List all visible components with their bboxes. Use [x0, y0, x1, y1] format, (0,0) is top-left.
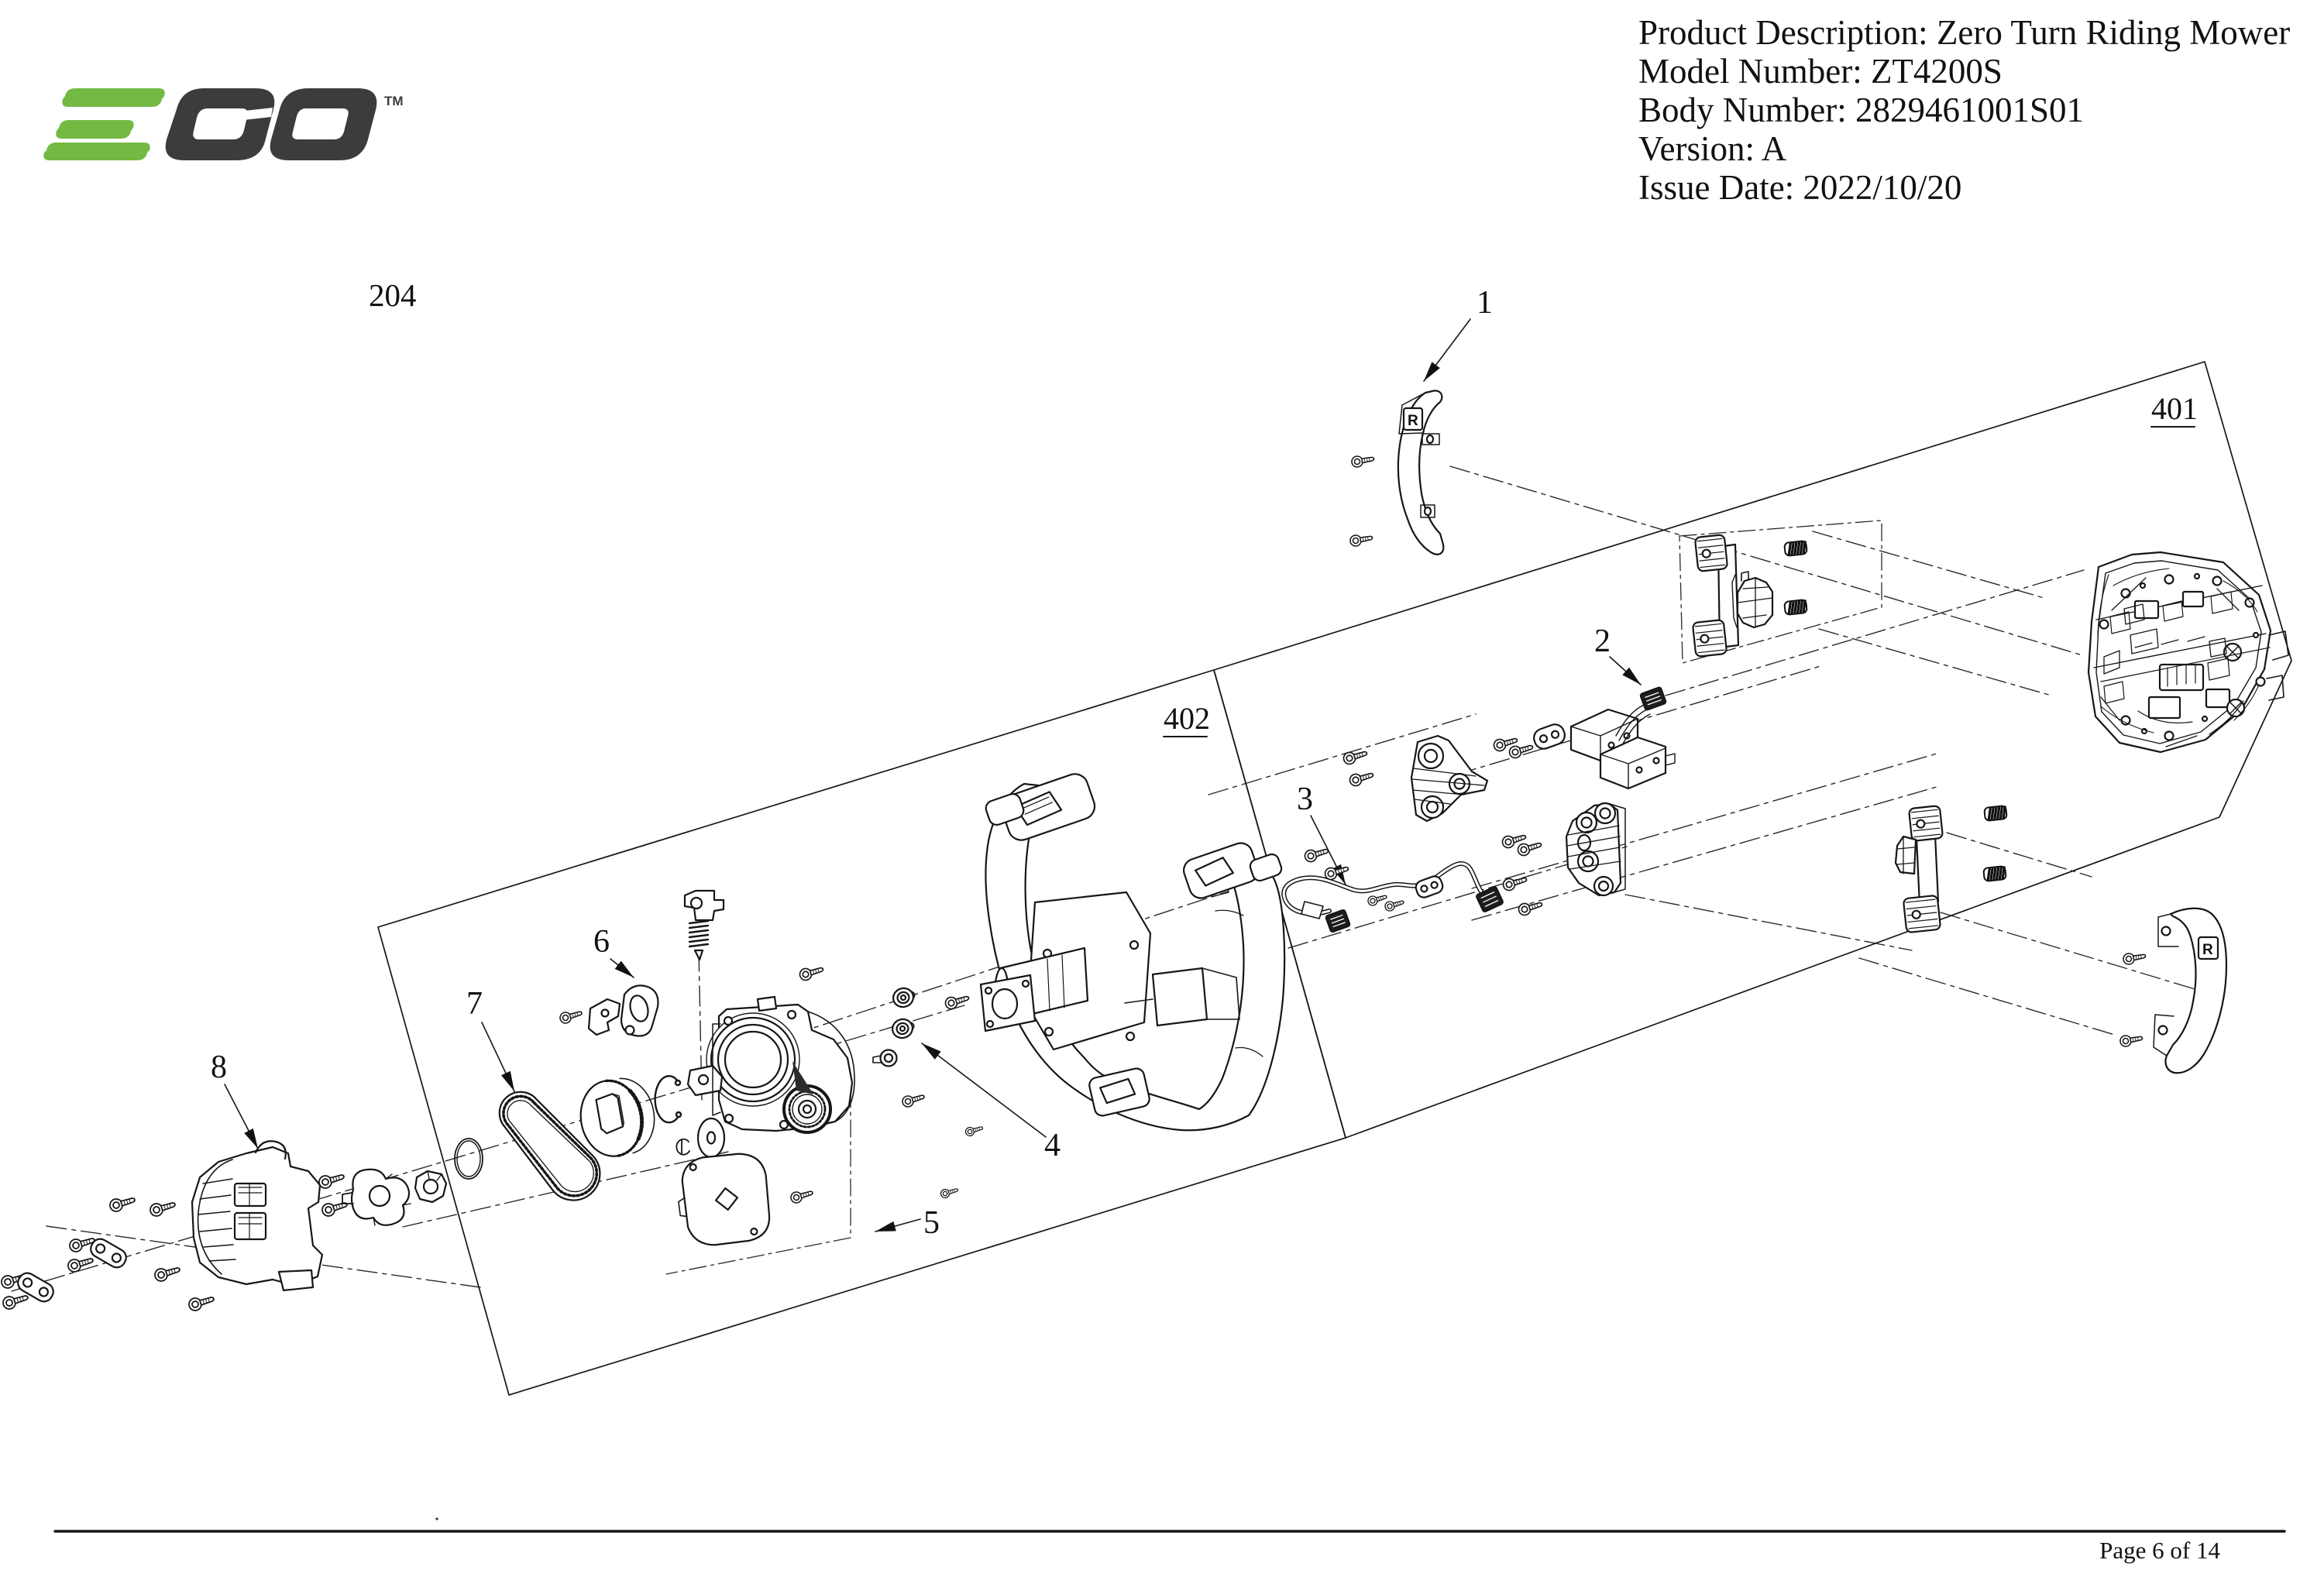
svg-text:R: R [1408, 413, 1418, 429]
svg-text:Product Description: Zero Turn: Product Description: Zero Turn Riding Mo… [1638, 13, 2290, 52]
svg-text:Model Number: ZT4200S: Model Number: ZT4200S [1638, 52, 2003, 91]
svg-text:R: R [2202, 942, 2213, 958]
svg-text:Body Number: 2829461001S01: Body Number: 2829461001S01 [1638, 91, 2084, 129]
svg-text:8: 8 [211, 1050, 227, 1085]
svg-text:7: 7 [466, 986, 483, 1022]
svg-text:5: 5 [923, 1205, 940, 1241]
svg-text:6: 6 [593, 924, 610, 960]
svg-text:2: 2 [1594, 624, 1611, 659]
svg-text:4: 4 [1044, 1128, 1061, 1163]
svg-text:402: 402 [1164, 701, 1210, 736]
svg-text:204: 204 [369, 277, 417, 313]
svg-text:1: 1 [1477, 285, 1493, 321]
svg-text:Version: A: Version: A [1638, 129, 1787, 168]
svg-text:Issue Date: 2022/10/20: Issue Date: 2022/10/20 [1638, 168, 1961, 207]
svg-text:401: 401 [2151, 391, 2198, 426]
svg-text:3: 3 [1297, 782, 1313, 817]
svg-text:Page 6 of 14: Page 6 of 14 [2099, 1537, 2220, 1564]
svg-text:TM: TM [384, 94, 404, 108]
